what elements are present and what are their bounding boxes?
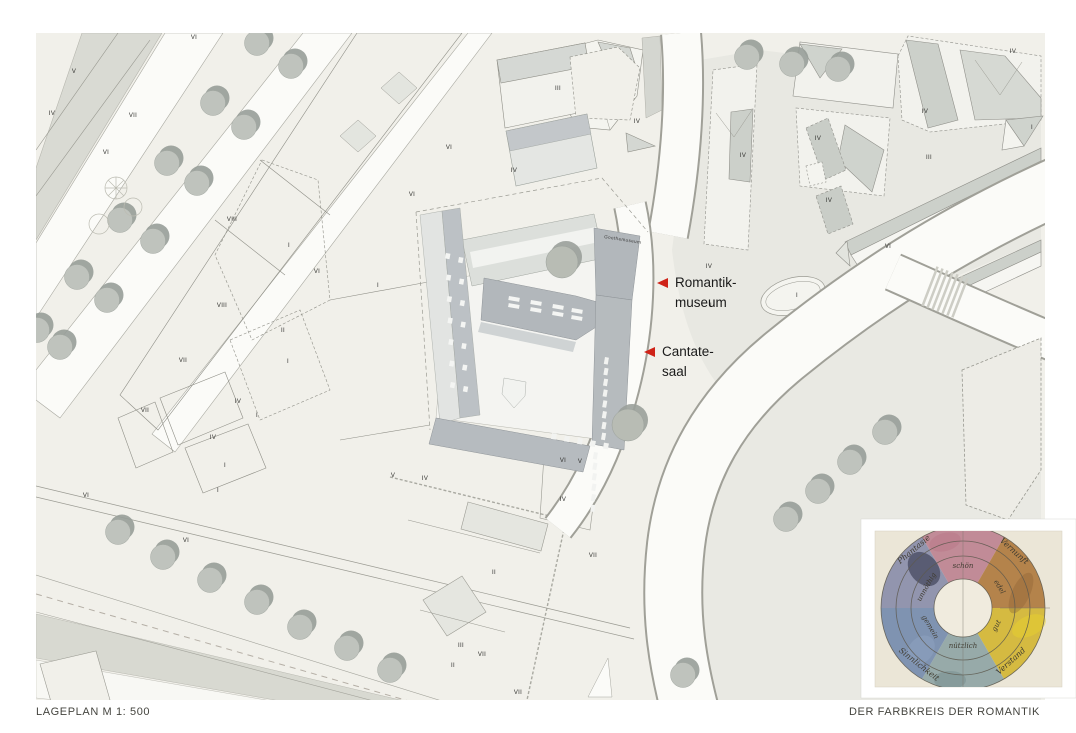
storey-label: IV	[1010, 49, 1016, 55]
storey-label: IV	[511, 168, 517, 174]
storey-label: VII	[141, 408, 149, 414]
tree	[245, 590, 270, 615]
window-dot	[449, 361, 454, 367]
storey-label: IV	[422, 476, 428, 482]
storey-label: VI	[83, 493, 89, 499]
storey-label: IV	[922, 109, 928, 115]
storey-label: VI	[885, 244, 891, 250]
storey-label: VII	[514, 690, 522, 696]
tree	[671, 663, 696, 688]
storey-label: VII	[589, 553, 597, 559]
dormer-dot	[551, 433, 557, 440]
site-plan: VIVIVVIIVIVIIIIVIVIIIIIIVIVIIVIIIIVIVIVI…	[0, 0, 1076, 733]
window-dot	[460, 322, 465, 328]
storey-label: III	[555, 86, 561, 92]
storey-label: VI	[409, 192, 415, 198]
storey-label: VII	[179, 358, 187, 364]
storey-label: III	[458, 643, 464, 649]
dormer-dot	[603, 443, 609, 450]
window-dot	[448, 339, 453, 345]
window-dot	[458, 257, 463, 263]
window-dot	[462, 365, 467, 371]
tree	[774, 507, 799, 532]
dormer-dot	[564, 435, 570, 442]
window-dot	[459, 279, 464, 285]
dormer-dot	[577, 438, 583, 445]
tree	[735, 45, 760, 70]
storey-label: I	[287, 359, 289, 365]
tree	[873, 420, 898, 445]
tree	[232, 115, 257, 140]
tree	[48, 335, 73, 360]
storey-label: VI	[103, 150, 109, 156]
storey-label: IV	[706, 264, 712, 270]
tree	[806, 479, 831, 504]
storey-label: VII	[129, 113, 137, 119]
storey-label: IV	[815, 136, 821, 142]
storey-label: II	[451, 663, 455, 669]
window-dot	[461, 343, 466, 349]
storey-label: IV	[740, 153, 746, 159]
tree	[185, 171, 210, 196]
storey-label: I	[796, 293, 798, 299]
storey-label: VII	[478, 652, 486, 658]
tree	[151, 545, 176, 570]
storey-label: I	[256, 413, 258, 419]
storey-label: I	[377, 283, 379, 289]
tree	[65, 265, 90, 290]
wheel-label: nützlich	[949, 642, 977, 650]
tree	[95, 288, 120, 313]
window-dot	[447, 296, 452, 302]
storey-label: VIII	[217, 303, 227, 309]
farbkreis-inset: schönedelgutnützlichgemeinunnöthigVernun…	[861, 519, 1076, 698]
tree	[108, 208, 133, 233]
tree	[780, 52, 805, 77]
storey-label: IV	[235, 399, 241, 405]
storey-label: VIII	[227, 217, 237, 223]
window-dot	[446, 275, 451, 281]
tree	[155, 151, 180, 176]
tree	[288, 615, 313, 640]
storey-label: I	[288, 243, 290, 249]
tree	[279, 54, 304, 79]
tree	[546, 246, 578, 278]
storey-label: V	[578, 459, 582, 465]
dormer-dot	[590, 440, 596, 447]
plan-title: LAGEPLAN M 1: 500	[36, 706, 150, 718]
tree	[141, 229, 166, 254]
tree	[335, 636, 360, 661]
storey-label: I	[217, 488, 219, 494]
window-dot	[463, 386, 468, 392]
storey-label: V	[391, 473, 395, 479]
window-dot	[445, 253, 450, 259]
tree	[826, 57, 851, 82]
storey-label: VI	[560, 458, 566, 464]
tree	[245, 31, 270, 56]
tree	[198, 568, 223, 593]
storey-label: VI	[314, 269, 320, 275]
window-dot	[447, 318, 452, 324]
presentation-page: VIVIVVIIVIVIIIIVIVIIIIIIVIVIIVIIIIVIVIVI…	[0, 0, 1076, 733]
storey-label: V	[72, 69, 76, 75]
tree	[201, 91, 226, 116]
storey-label: IV	[49, 111, 55, 117]
storey-label: IV	[634, 119, 640, 125]
storey-label: I	[1031, 125, 1033, 131]
tree	[838, 450, 863, 475]
storey-label: I	[224, 463, 226, 469]
storey-label: III	[926, 155, 932, 161]
window-dot	[460, 300, 465, 306]
storey-label: IV	[560, 497, 566, 503]
storey-label: VI	[446, 145, 452, 151]
tree	[25, 318, 50, 343]
tree	[378, 658, 403, 683]
storey-label: IV	[210, 435, 216, 441]
wheel-label: schön	[953, 562, 974, 570]
storey-label: II	[281, 328, 285, 334]
storey-label: VI	[183, 538, 189, 544]
inset-title: DER FARBKREIS DER ROMANTIK	[849, 706, 1040, 718]
tree	[106, 520, 131, 545]
storey-label: IV	[826, 198, 832, 204]
storey-label: II	[492, 570, 496, 576]
window-dot	[450, 382, 455, 388]
storey-label: VI	[191, 35, 197, 41]
tree	[612, 409, 644, 441]
